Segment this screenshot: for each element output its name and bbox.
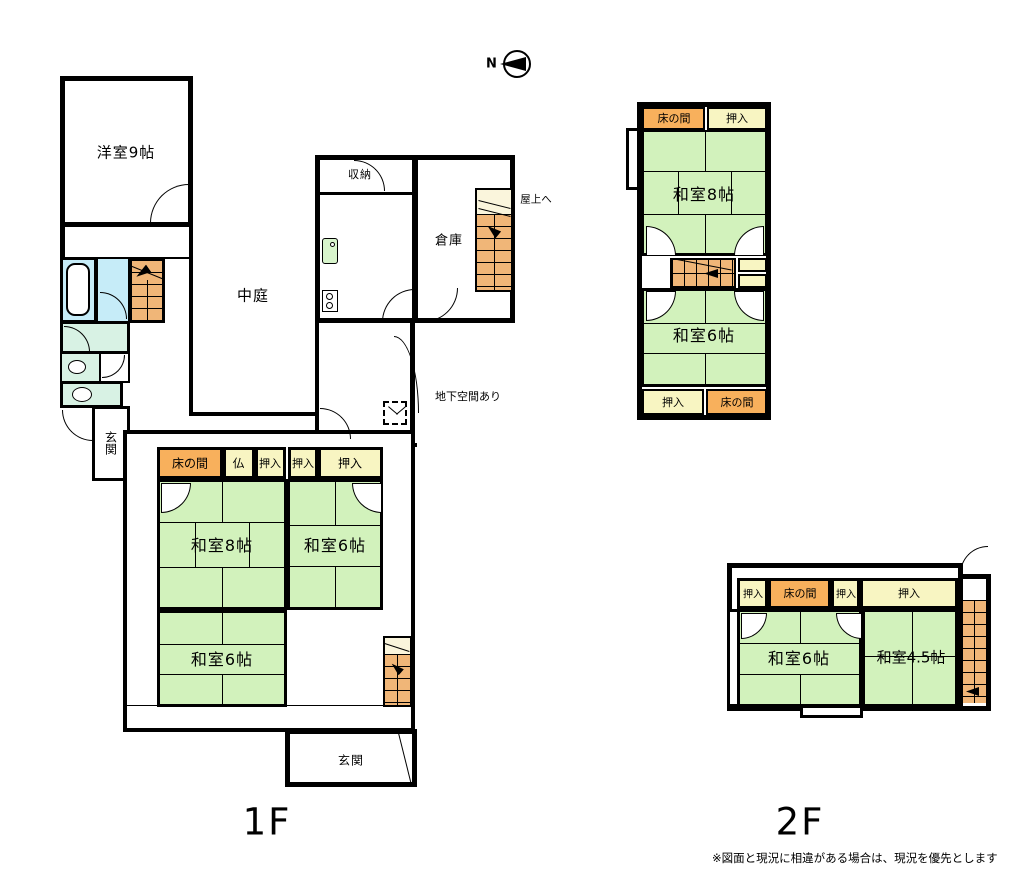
f2-south-notch (800, 705, 863, 718)
tatami-line (705, 291, 706, 323)
stair-rail-line (974, 600, 975, 703)
underfloor-note-label: 地下空間あり (435, 388, 501, 404)
oshiire-2fs-3-label: 押入 (898, 585, 920, 601)
tatami-line (160, 522, 284, 523)
room-washitsu-6-east-label: 和室6帖 (304, 532, 366, 556)
room-washitsu-6-2fs-label: 和室6帖 (768, 645, 830, 669)
closet-2fn-b (738, 274, 767, 288)
engawa-line (127, 705, 411, 706)
tatami-line (705, 132, 706, 171)
hallway-west (60, 225, 193, 259)
stair-rail-line (494, 214, 495, 290)
tokonoma-1f-label: 床の間 (172, 455, 208, 472)
stair-rail-line (147, 280, 148, 323)
stair-rail-line (397, 654, 398, 705)
burner-icon (326, 302, 333, 309)
floor2-title: 2F (776, 801, 825, 844)
room-washitsu-8-2f-label: 和室8帖 (673, 181, 735, 205)
tatami-line (160, 644, 284, 645)
entrance-main-label: 玄関 (338, 752, 364, 769)
oshiire-2fn-bottom-label: 押入 (662, 394, 684, 410)
room-yoshitsu-9-label: 洋室9帖 (97, 142, 156, 163)
tatami-line (222, 567, 223, 607)
tatami-line (290, 525, 380, 526)
tatami-line (222, 613, 223, 644)
door-arc (394, 336, 419, 413)
tokonoma-2fn-bottom-label: 床の間 (721, 394, 754, 410)
door-arc (62, 410, 93, 441)
tatami-line (705, 353, 706, 384)
bathtub-icon (66, 263, 90, 316)
room-washitsu-6-south-label: 和室6帖 (191, 646, 253, 670)
disclaimer-note: ※図面と現況に相違がある場合は、現況を優先とします (712, 850, 998, 866)
door-arc (960, 546, 988, 574)
toilet-icon (72, 387, 92, 402)
butsudan-label: 仏 (232, 455, 245, 472)
faucet-icon (330, 242, 335, 247)
tatami-line (800, 612, 801, 643)
floor1-title: 1F (243, 801, 292, 844)
oshiire-1f-b-label: 押入 (292, 455, 314, 471)
room-washitsu-6-2fn-label: 和室6帖 (673, 322, 735, 346)
entrance-side-label: 玄関 (103, 431, 120, 455)
stair-rail-line (670, 273, 736, 274)
burner-icon (326, 293, 333, 300)
oshiire-2fs-2-label: 押入 (836, 586, 856, 601)
wall (189, 76, 193, 416)
f2-north-bay (626, 128, 640, 190)
closet-2fn-a (738, 258, 767, 272)
tokonoma-2fs-label: 床の間 (784, 585, 817, 601)
toilet-icon (68, 360, 86, 374)
floor-plan-canvas: N 洋室9帖 玄関 収納 倉庫 屋上へ 中庭 (0, 0, 1024, 881)
oshiire-2fs-1-label: 押入 (743, 586, 763, 601)
compass-north-label: N (486, 57, 498, 72)
courtyard-label: 中庭 (237, 285, 269, 306)
wall (189, 412, 319, 416)
oshiire-1f-a-label: 押入 (259, 455, 281, 471)
to-roof-label: 屋上へ (520, 192, 552, 207)
room-storage-label: 収納 (348, 166, 372, 182)
tatami-line (800, 674, 801, 704)
tatami-line (222, 674, 223, 704)
oshiire-2fn-top-label: 押入 (726, 110, 748, 126)
tatami-line (644, 171, 765, 172)
tatami-line (335, 482, 336, 525)
room-washitsu-8-1f-label: 和室8帖 (191, 532, 253, 556)
tatami-line (222, 482, 223, 522)
tatami-line (335, 566, 336, 607)
tatami-line (705, 214, 706, 253)
oshiire-1f-c-label: 押入 (338, 455, 362, 472)
room-warehouse-label: 倉庫 (435, 230, 463, 249)
tokonoma-2fn-top-label: 床の間 (658, 110, 691, 126)
room-washitsu-45-2fs-label: 和室4.5帖 (877, 647, 946, 668)
